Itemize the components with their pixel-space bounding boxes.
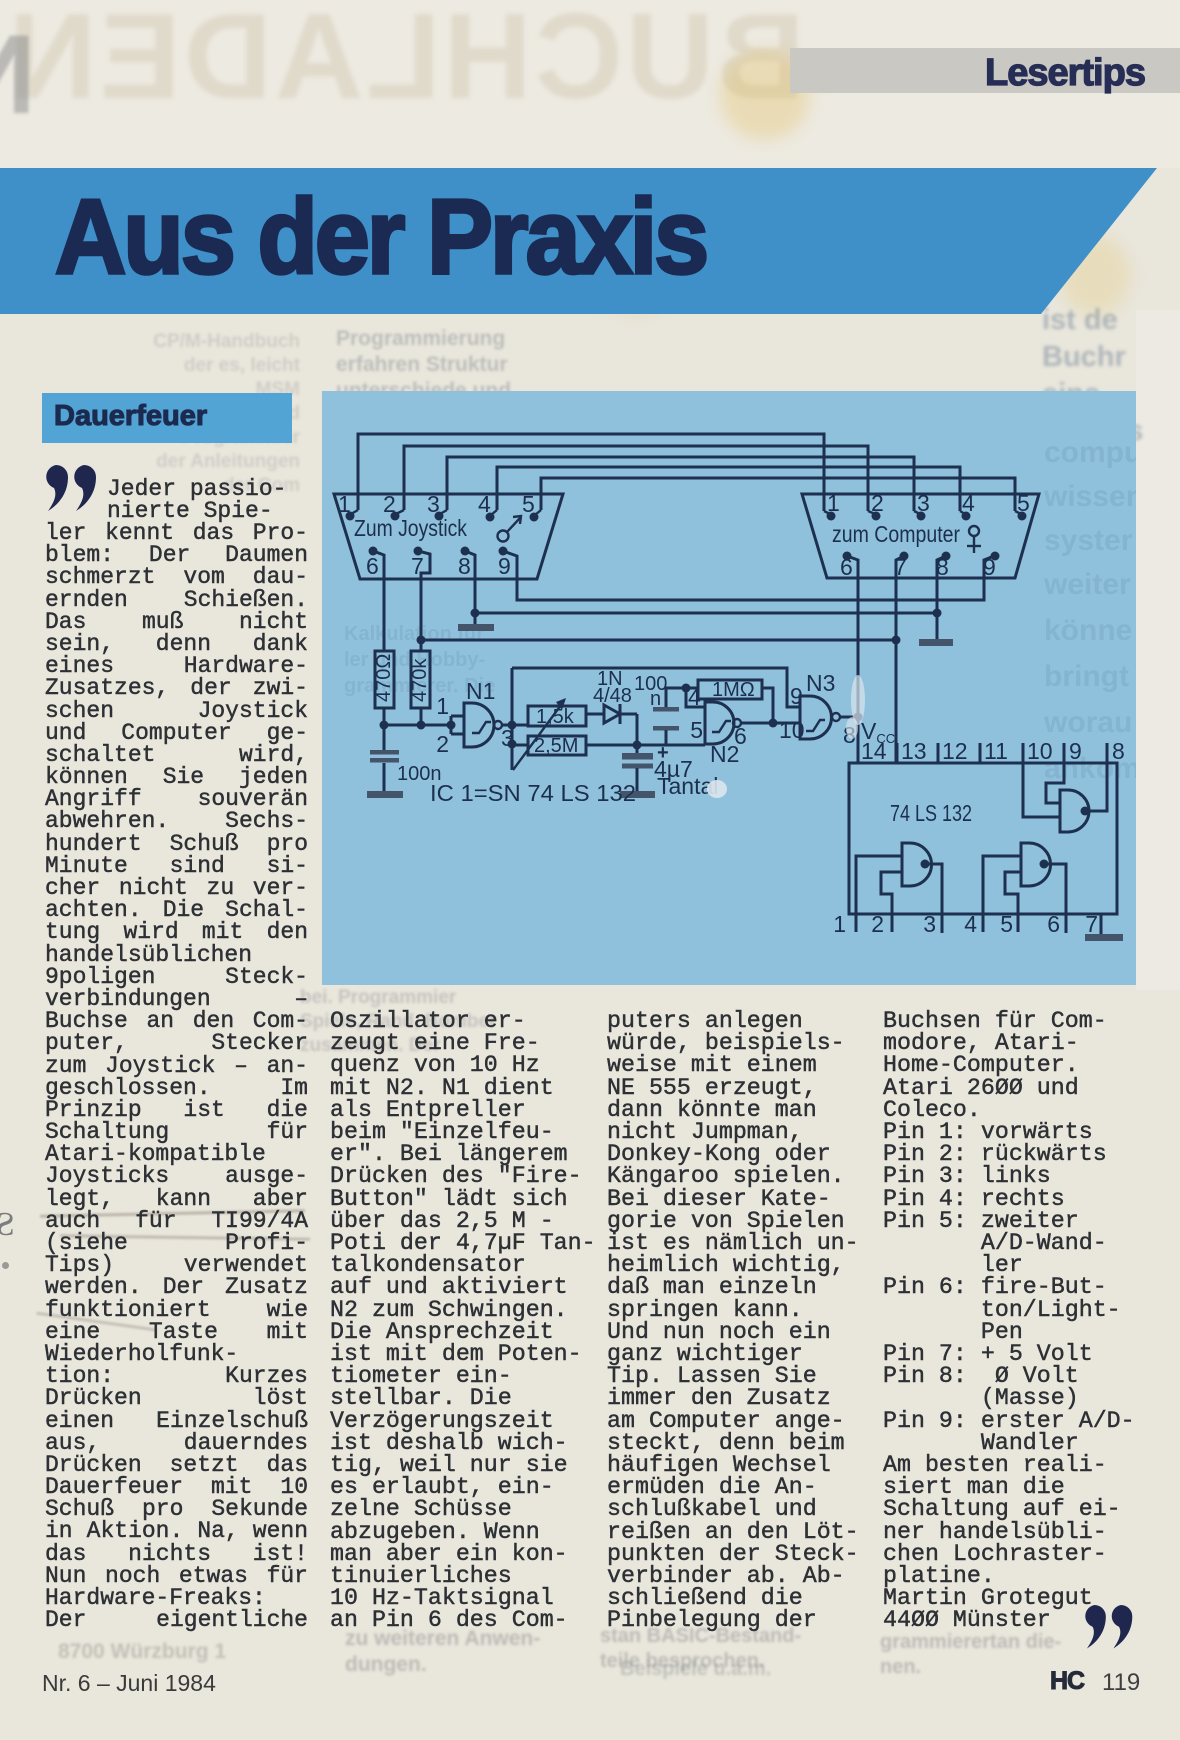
svg-text:N3: N3	[806, 670, 835, 696]
svg-text:8: 8	[458, 553, 471, 579]
svg-text:1MΩ: 1MΩ	[712, 679, 755, 701]
svg-text:5: 5	[522, 491, 535, 517]
svg-text:weiter: weiter	[1043, 568, 1131, 601]
svg-text:1,5k: 1,5k	[536, 706, 575, 728]
svg-text:worau: worau	[1043, 706, 1132, 739]
svg-text:4: 4	[964, 911, 977, 937]
svg-text:2: 2	[871, 911, 884, 937]
svg-text:470k: 470k	[409, 658, 431, 702]
svg-text:n: n	[650, 688, 661, 710]
svg-text:2: 2	[383, 491, 396, 517]
svg-text:4: 4	[962, 490, 975, 516]
svg-text:8: 8	[936, 554, 949, 580]
svg-text:1: 1	[827, 490, 840, 516]
svg-text:6: 6	[840, 554, 853, 580]
svg-text:470Ω: 470Ω	[373, 654, 395, 702]
svg-text:könne: könne	[1044, 614, 1132, 647]
svg-text:1: 1	[338, 491, 351, 517]
svg-text:1: 1	[833, 911, 846, 937]
svg-text:7: 7	[894, 554, 907, 580]
svg-text:7: 7	[1085, 911, 1098, 937]
svg-text:74 LS 132: 74 LS 132	[890, 800, 972, 826]
svg-text:9: 9	[498, 553, 511, 579]
svg-text:6: 6	[1047, 911, 1060, 937]
svg-text:12: 12	[942, 738, 968, 764]
svg-text:6: 6	[366, 553, 379, 579]
svg-text:10: 10	[1027, 738, 1053, 764]
svg-text:2: 2	[871, 490, 884, 516]
svg-text:8: 8	[1112, 738, 1125, 764]
svg-text:Zum Joystick: Zum Joystick	[354, 515, 467, 541]
svg-text:9: 9	[1069, 738, 1082, 764]
svg-text:3: 3	[917, 490, 930, 516]
svg-text:N2: N2	[710, 741, 739, 767]
svg-text:7: 7	[411, 553, 424, 579]
svg-text:13: 13	[901, 738, 927, 764]
svg-text:3: 3	[923, 911, 936, 937]
svg-text:11: 11	[984, 738, 1008, 764]
svg-text:5: 5	[1000, 911, 1013, 937]
svg-text:5: 5	[690, 717, 703, 743]
svg-text:4: 4	[478, 491, 491, 517]
svg-text:compu: compu	[1044, 436, 1136, 469]
svg-text:2: 2	[436, 731, 449, 757]
svg-text:1: 1	[436, 693, 449, 719]
svg-text:2,5M: 2,5M	[534, 735, 578, 757]
svg-text:5: 5	[1017, 490, 1030, 516]
svg-text:wissen: wissen	[1043, 480, 1136, 513]
svg-text:4: 4	[688, 684, 701, 710]
svg-text:syster: syster	[1044, 524, 1133, 557]
svg-text:14: 14	[861, 738, 887, 764]
svg-text:zum Computer: zum Computer	[832, 521, 960, 547]
svg-text:9: 9	[983, 554, 996, 580]
svg-text:3: 3	[427, 491, 440, 517]
svg-text:4/48: 4/48	[593, 685, 632, 707]
svg-text:bringt: bringt	[1044, 660, 1129, 693]
svg-text:IC 1=SN 74 LS 132: IC 1=SN 74 LS 132	[430, 780, 636, 806]
svg-text:N1: N1	[466, 678, 495, 704]
